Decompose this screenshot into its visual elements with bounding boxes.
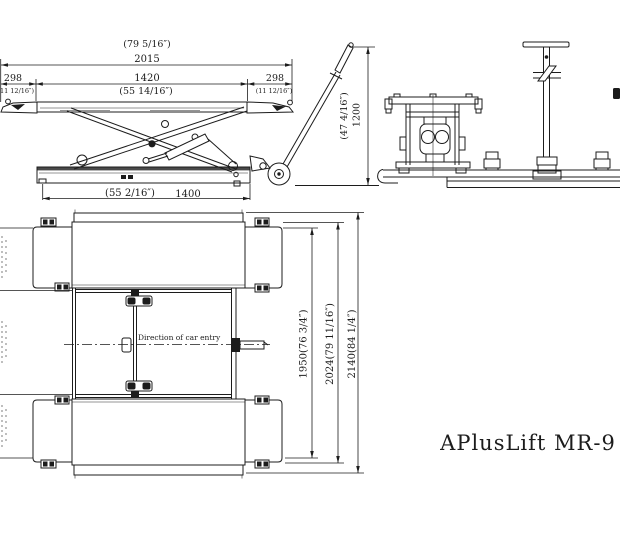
dim-height-inch: (47 4/16″) [339,92,350,139]
dim-base-inch: (55 2/16″) [105,188,155,199]
tow-handle [250,43,353,185]
wheel-stop-tabs-lower [41,396,269,468]
tow-bar-top-view [231,338,268,352]
front-base-rails [378,170,620,188]
dim-right-overhang-inch: (11 12/16″) [256,87,293,95]
dim-mid-inch: (55 14/16″) [119,86,172,97]
clipped-edge-part [613,88,620,99]
top-platform-lower [33,396,282,479]
dim-height-mm: 1200 [352,103,363,127]
dim-base-length: (55 2/16″) 1400 [43,184,250,200]
dim-base-mm: 1400 [175,189,200,200]
cylinder-top-view [122,338,131,352]
side-platform [37,102,247,112]
wheel-stop-tabs-upper [41,218,269,292]
side-view: (79 5/16″) 2015 298 (11 12/16″) 1420 (55… [0,39,379,200]
extension-left-lower [33,400,72,462]
dim-w2-label: 2024(79 11/16″) [325,303,336,385]
entry-direction-label: Direction of car entry [138,333,221,342]
front-view [378,42,620,188]
dim-left-overhang-mm: 298 [4,73,22,84]
dim-width-2024: 2024(79 11/16″) [283,223,344,464]
pipe-break-symbol [538,66,556,81]
clipped-dimension-label [2,236,6,449]
top-platform-upper [33,210,282,293]
extension-right-lower [245,400,282,462]
dim-total-inch: (79 5/16″) [123,39,170,50]
scissor-arms [67,107,247,172]
center-pivot [148,140,155,147]
dim-mid-mm: 1420 [134,73,159,84]
side-base [37,167,250,186]
top-view: Direction of car entry [0,210,364,479]
extension-right-upper [245,227,282,288]
dim-left-overhang-inch: (11 12/16″) [0,87,34,95]
hydraulic-cylinder [143,134,236,164]
side-ramp-right [247,100,293,113]
drawing-sheet: (79 5/16″) 2015 298 (11 12/16″) 1420 (55… [0,0,620,550]
dim-total-mm: 2015 [134,54,159,65]
top-center-frame: Direction of car entry [64,288,270,399]
clipped-left-dimensions [0,228,73,458]
dim-right-overhang-mm: 298 [266,73,284,84]
extension-left-upper [33,227,72,288]
front-roller-brackets [484,152,610,170]
model-title: APlusLift MR-9 [439,431,616,455]
handle-grip [335,45,353,73]
dim-width-1950: 1950(76 3/4″) [283,228,318,458]
lift-drawing: (79 5/16″) 2015 298 (11 12/16″) 1420 (55… [0,0,620,550]
dim-segments: 298 (11 12/16″) 1420 (55 14/16″) 298 (11… [0,73,293,101]
dim-w3-label: 2140(84 1/4″) [347,309,358,378]
dim-w1-label: 1950(76 3/4″) [299,309,310,378]
front-lift-unit [385,94,482,176]
side-ramp-left [1,99,37,113]
